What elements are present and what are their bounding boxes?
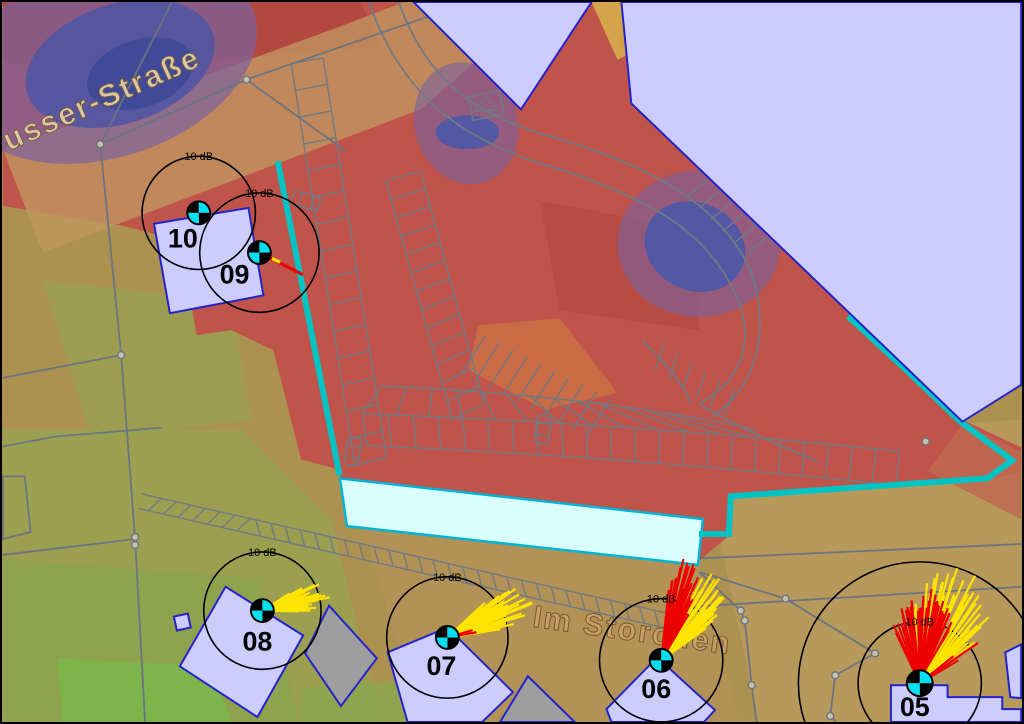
receiver-marker[interactable] [187,201,210,224]
receiver-id-label: 09 [220,259,250,289]
receiver-id-label: 06 [641,674,671,704]
range-ring-label: 10 dB [433,572,462,584]
parcel-node [832,672,839,679]
receiver-marker[interactable] [251,599,274,622]
receiver-id-label: 10 [168,224,198,254]
receiver-marker[interactable] [650,649,673,672]
range-ring-label: 10 dB [245,188,274,200]
parcel-node [922,438,929,445]
building-08-annex [174,614,191,631]
noise-map-svg: usser-Straße Im Storchen 10 dB1010 dB091… [2,2,1022,722]
receiver-id-label: 07 [426,651,456,681]
parcel-node [782,595,789,602]
noise-blob-1-core [435,115,499,149]
receiver-id-label: 05 [900,692,930,722]
parcel-node [97,141,104,148]
parcel-node [132,542,139,549]
noise-map-canvas: usser-Straße Im Storchen 10 dB1010 dB091… [0,0,1024,724]
range-ring-label: 10 dB [905,617,934,629]
parcel-node [243,76,250,83]
parcel-node [737,607,744,614]
range-ring-label: 10 dB [248,547,277,559]
parcel-node [118,352,125,359]
receiver-marker[interactable] [248,241,271,264]
parcel-node [132,534,139,541]
range-ring-label: 10 dB [184,151,213,163]
receiver-marker[interactable] [436,626,459,649]
range-ring-label: 10 dB [647,594,676,606]
parcel-node [741,617,748,624]
receiver-id-label: 08 [242,626,272,656]
parcel-node [748,682,755,689]
parcel-node [872,650,879,657]
parcel-node [827,713,834,720]
stall-line [683,432,684,465]
stall-line [586,425,587,458]
